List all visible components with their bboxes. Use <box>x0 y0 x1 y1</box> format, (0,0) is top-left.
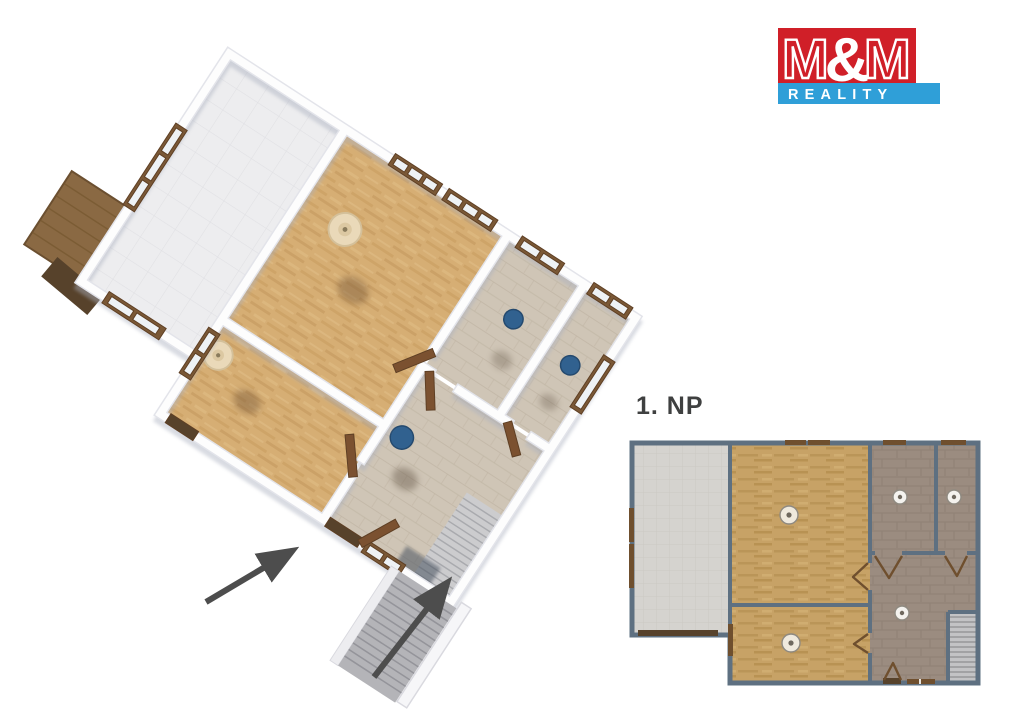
stairs-2d <box>948 612 978 683</box>
floor-label: 1. NP <box>636 392 704 421</box>
terrace-door-2d <box>638 630 718 636</box>
logo-ampersand: & <box>825 28 870 95</box>
logo-m-right: M <box>864 28 911 90</box>
light-icon <box>947 490 961 504</box>
entrance-arrow-icon <box>206 551 292 602</box>
living-room-floor-2d <box>730 443 870 605</box>
floor-plan-3d-render <box>0 0 700 724</box>
mm-reality-logo: M M & REALITY <box>778 28 940 104</box>
light-icon <box>893 490 907 504</box>
logo-reality-text: REALITY <box>788 87 893 103</box>
room-floors-2d <box>632 443 978 683</box>
light-icon <box>782 634 800 652</box>
floor-plan-2d <box>628 438 984 688</box>
terrace-floor-2d <box>632 443 730 635</box>
door-leaf <box>425 371 435 410</box>
logo-m-left: M <box>782 28 829 90</box>
floorplan-sheet: M M & REALITY 1. NP <box>0 0 1024 724</box>
light-icon <box>780 506 798 524</box>
light-icon <box>895 606 909 620</box>
